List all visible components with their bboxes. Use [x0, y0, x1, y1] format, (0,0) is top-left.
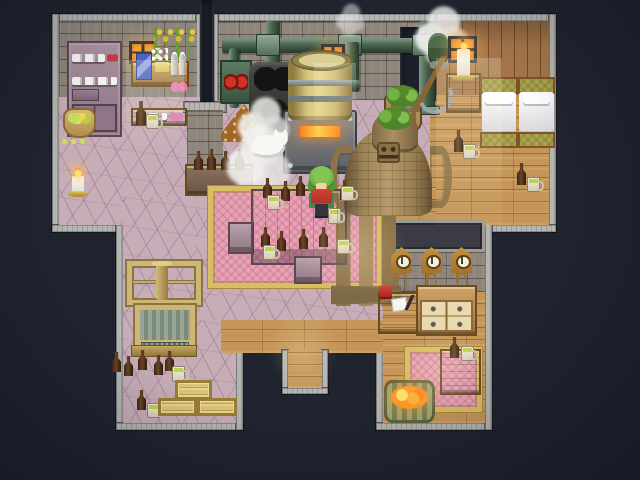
bed-right-p-bedsheet: [519, 92, 553, 133]
hutch-cabinet-p-drawer-mini: [72, 89, 99, 101]
gap-channel-left: [200, 0, 214, 110]
wall-shelf-p-bluecloth: [136, 53, 152, 79]
floor-doorstep-exit[interactable]: [288, 350, 322, 388]
fruit-scatter-icon: [60, 137, 88, 147]
wall-trim-bedroom-top: [436, 14, 556, 21]
hero-character-p-legs: [315, 204, 328, 218]
candle-nightstand: [457, 49, 470, 78]
stool-south[interactable]: [294, 256, 322, 284]
game-scene-layer: [0, 0, 640, 480]
brew-vat[interactable]: [288, 56, 352, 120]
wall-trim-leg-east: [236, 348, 243, 430]
bed-left[interactable]: [480, 77, 518, 148]
wall-trim-left-west: [52, 14, 59, 232]
hutch-cabinet-p-shelfrow-a: [72, 54, 105, 62]
hero-character[interactable]: [308, 166, 335, 218]
ember-brazier[interactable]: [384, 380, 435, 423]
wall-trim-left-top: [52, 14, 200, 21]
mug-table-4: [337, 239, 350, 254]
hutch-cabinet-p-shelfrow-b: [72, 77, 117, 85]
wall-trim-doorstep-south: [282, 388, 328, 394]
wall-trim-clockroom-east: [485, 222, 492, 430]
quill-pen-icon: [404, 295, 415, 310]
mug-table-1: [267, 195, 280, 210]
wall-trim-left-south: [52, 225, 123, 232]
crate-east[interactable]: [197, 398, 237, 416]
game-viewport[interactable]: [0, 0, 640, 480]
wall-trim-clockroom-west: [376, 350, 383, 430]
wall-shelf-p-cheese: [155, 62, 169, 74]
mug-sidetable: [461, 346, 474, 361]
drawer-cabinet-p-drawers4: [420, 300, 472, 332]
pipe-joint-a: [256, 34, 280, 56]
red-book: [379, 286, 392, 299]
fruit-sack[interactable]: [63, 108, 96, 138]
wall-trim-leg-south: [116, 423, 243, 430]
valve-panel[interactable]: [220, 60, 252, 104]
hutch-cabinet-p-slippers-red: [107, 53, 118, 63]
mug-table-2: [341, 186, 354, 201]
mug-bedroom-1: [463, 144, 476, 159]
bed-right[interactable]: [518, 77, 555, 148]
drawer-cabinet[interactable]: [416, 285, 477, 336]
wall-stone-column: [187, 110, 223, 168]
wall-shelf-p-jug-a: [171, 52, 179, 77]
slippers-pink-floor: [171, 82, 187, 92]
loom-cloth: [135, 305, 195, 345]
mug-floor-left: [146, 114, 159, 129]
bed-left-p-bedfoot: [480, 132, 518, 148]
crate-small[interactable]: [175, 380, 212, 400]
candle-floor-left: [72, 176, 84, 194]
wall-shelf-p-jug-b: [179, 52, 187, 77]
hero-character-p-torso: [311, 189, 332, 205]
wall-trim-leg-west: [116, 225, 123, 430]
crate-west[interactable]: [158, 398, 197, 416]
wall-trim-central-top: [214, 14, 440, 21]
cat[interactable]: [251, 135, 285, 157]
wall-trim-clockroom-south: [376, 423, 492, 430]
bed-left-p-bedsheet: [482, 92, 517, 133]
mug-bedroom-2: [527, 177, 540, 192]
mug-table-3: [263, 245, 276, 260]
loom-spindle: [156, 264, 168, 300]
bed-right-p-bedfoot: [518, 132, 555, 148]
lower-shelf-p-slippers-pink: [170, 113, 184, 121]
statue-arm-right: [430, 146, 452, 208]
